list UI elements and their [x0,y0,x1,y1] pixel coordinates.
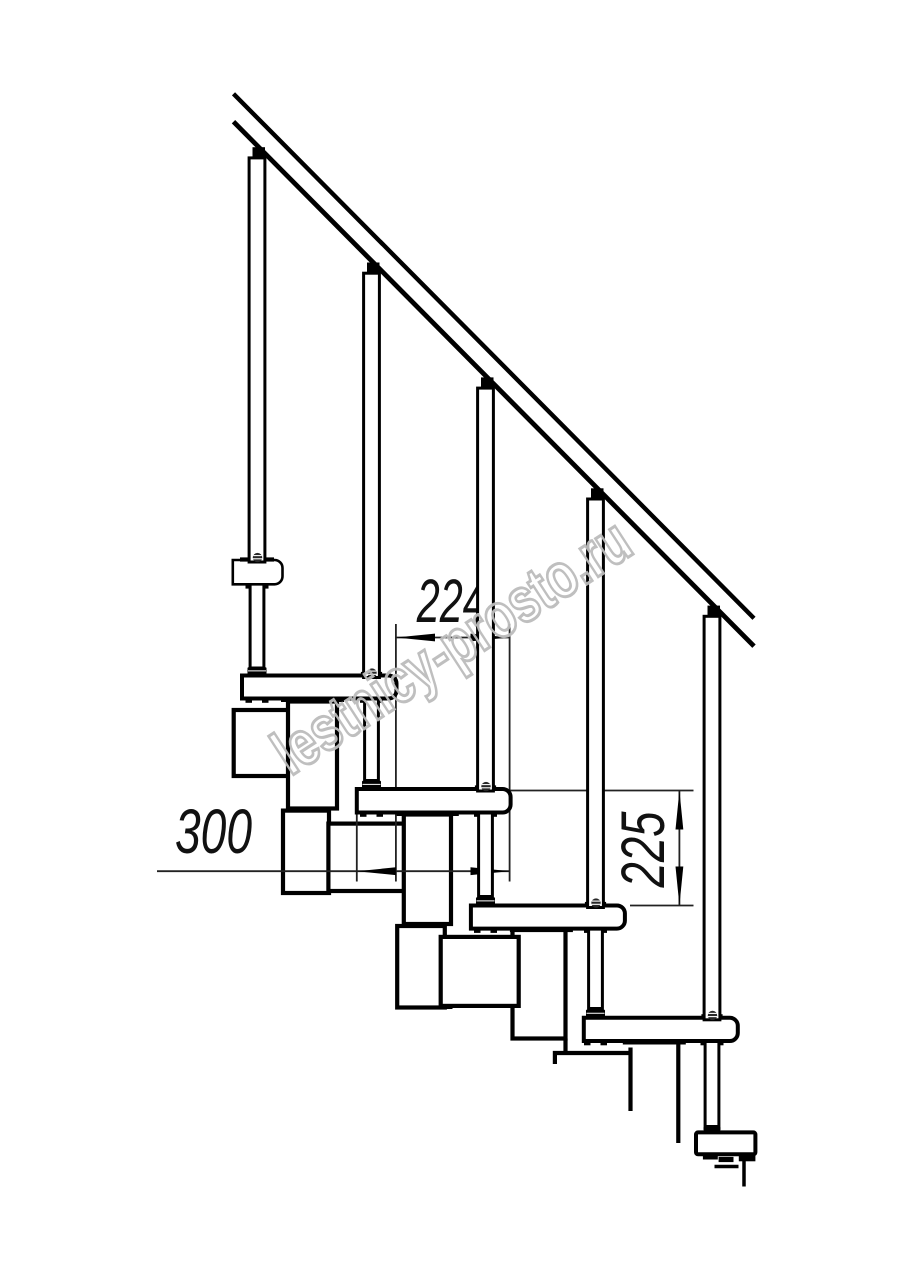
svg-text:300: 300 [175,797,252,867]
svg-text:225: 225 [609,811,677,889]
